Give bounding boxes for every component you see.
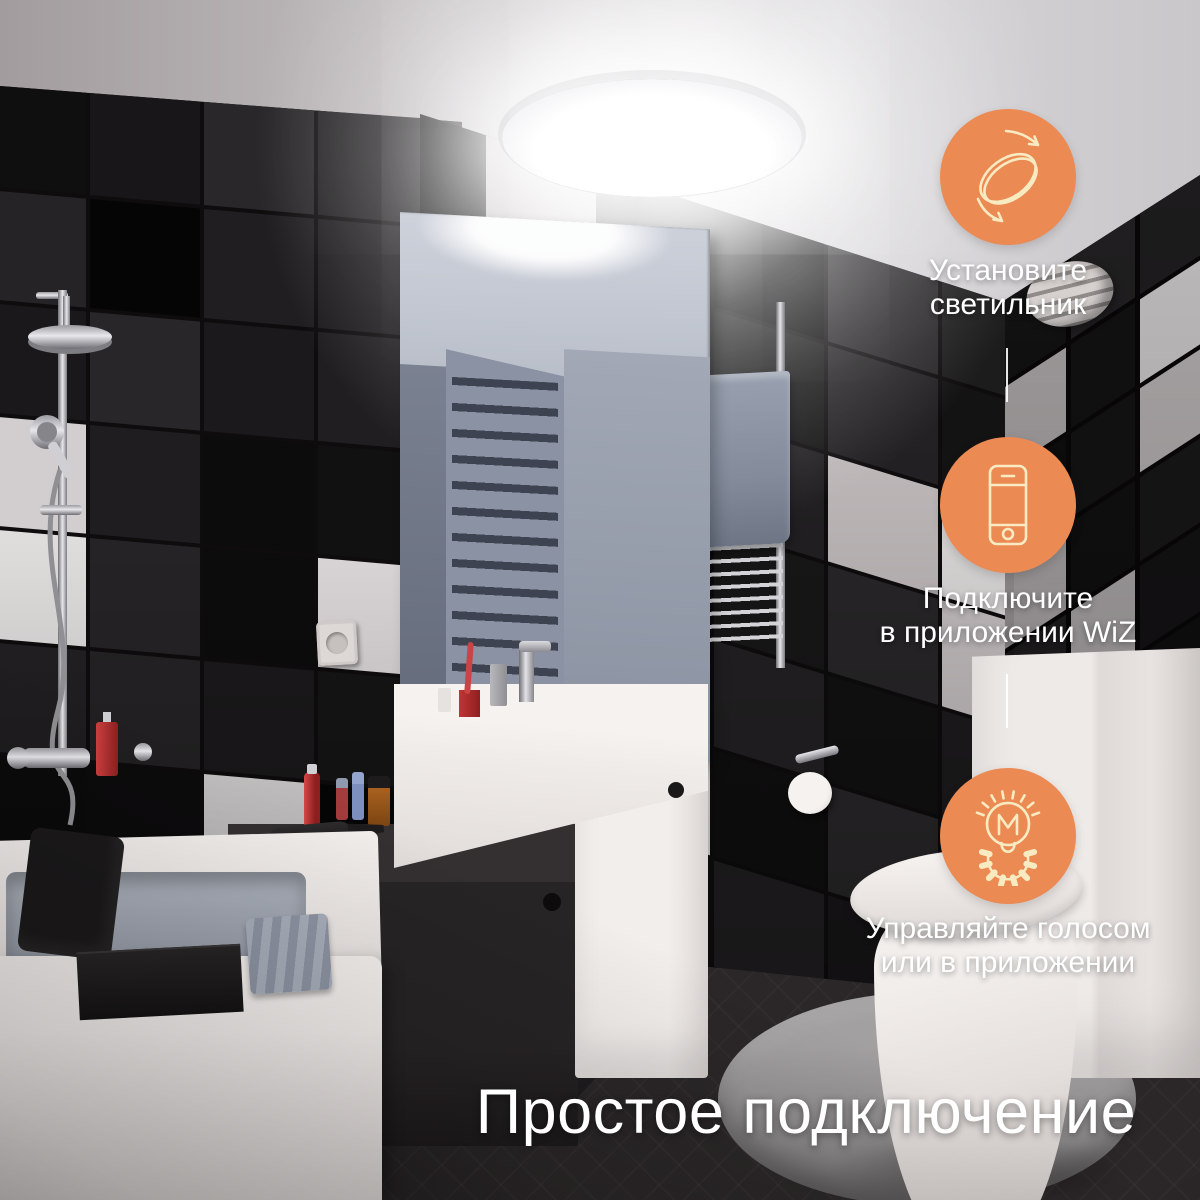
step-1-caption-line-1: Установите — [818, 254, 1198, 288]
black-tile — [204, 96, 314, 215]
mixer-valve — [134, 743, 152, 761]
hand-shower-face — [37, 422, 57, 442]
amber-bottle — [368, 776, 390, 826]
cosmetic-bottle — [352, 772, 364, 820]
headline: Простое подключение — [306, 1076, 1200, 1148]
black-tile — [204, 661, 314, 780]
mirror — [400, 212, 710, 761]
step-connector-1 — [1006, 348, 1008, 402]
red-cup — [459, 690, 480, 717]
black-tile — [0, 76, 86, 195]
sink-faucet — [519, 650, 534, 702]
bath-towel — [245, 913, 332, 995]
black-tile — [204, 322, 314, 441]
socket-hole — [325, 631, 348, 654]
step-3-caption: Управляйте голосом или в приложении — [818, 912, 1198, 980]
step-2-caption-line-1: Подключите — [818, 582, 1198, 616]
ceiling-light — [502, 79, 802, 197]
gray-cup — [490, 664, 507, 706]
shower-set — [0, 280, 200, 840]
cabinet-door-knob — [543, 893, 561, 911]
luminaire-rotate-install-icon — [958, 127, 1058, 227]
black-tile — [204, 209, 314, 328]
sink-faucet-spout — [519, 641, 551, 652]
cosmetic-bottle — [336, 778, 348, 820]
black-tile — [204, 548, 314, 667]
soap-dispenser — [96, 722, 118, 776]
mixer-handle — [7, 747, 29, 769]
step-3-caption-line-1: Управляйте голосом — [818, 912, 1198, 946]
bathroom-scene: Установите светильник Подключите в прило… — [0, 0, 1200, 1200]
black-tile — [90, 86, 200, 205]
step-2-caption: Подключите в приложении WiZ — [818, 582, 1198, 650]
step-2-caption-line-2: в приложении WiZ — [818, 616, 1198, 650]
vanity-door-knob — [668, 782, 684, 798]
toiletry-tube — [438, 688, 451, 712]
bath-caddy — [76, 944, 243, 1020]
voice-bulb-gear-icon — [958, 786, 1058, 886]
step-3-caption-line-2: или в приложении — [818, 946, 1198, 980]
red-bottle — [304, 772, 320, 826]
black-tile — [318, 106, 428, 225]
power-outlet — [316, 620, 358, 666]
rain-shower-head — [28, 325, 112, 349]
step-1-badge — [940, 109, 1076, 245]
toilet-paper-roll — [788, 772, 832, 814]
black-tile — [204, 435, 314, 554]
shower-rail-bracket — [40, 505, 82, 515]
step-connector-2 — [1006, 674, 1008, 728]
step-1-caption: Установите светильник — [818, 254, 1198, 322]
step-2-badge — [940, 437, 1076, 573]
smartphone-app-icon — [958, 455, 1058, 555]
bath-pillow — [17, 827, 125, 962]
step-3-badge — [940, 768, 1076, 904]
step-1-caption-line-2: светильник — [818, 288, 1198, 322]
red-bottle-cap — [307, 764, 317, 774]
shower-mixer — [22, 748, 90, 768]
